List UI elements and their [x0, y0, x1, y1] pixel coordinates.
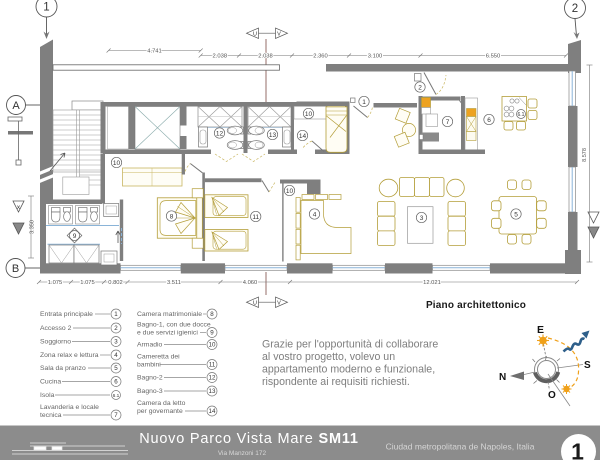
svg-text:3.350: 3.350	[30, 220, 36, 234]
svg-text:10: 10	[286, 188, 294, 195]
svg-text:per governante: per governante	[137, 408, 183, 415]
svg-text:6.1: 6.1	[518, 112, 525, 118]
svg-text:Entrata principale: Entrata principale	[40, 311, 93, 318]
svg-text:Accesso 2: Accesso 2	[40, 325, 72, 332]
svg-text:2.360: 2.360	[313, 54, 328, 60]
svg-text:Via Manzoni 172: Via Manzoni 172	[218, 450, 267, 457]
svg-text:4: 4	[313, 212, 317, 219]
svg-text:3: 3	[114, 339, 118, 346]
svg-text:11: 11	[252, 214, 259, 221]
svg-text:Zona relax e lettura: Zona relax e lettura	[40, 352, 99, 359]
svg-text:tecnica: tecnica	[40, 412, 62, 419]
svg-text:N: N	[499, 372, 506, 383]
svg-text:V: V	[277, 300, 281, 306]
svg-text:Ciudad metropolitana de Napole: Ciudad metropolitana de Napoles, Italia	[386, 442, 535, 452]
svg-text:2.038: 2.038	[258, 54, 273, 60]
svg-text:12: 12	[216, 131, 224, 138]
svg-text:8.578: 8.578	[582, 148, 588, 162]
svg-text:Camera da letto: Camera da letto	[137, 400, 186, 407]
svg-text:14: 14	[299, 133, 307, 140]
svg-text:13: 13	[269, 132, 277, 139]
svg-text:1: 1	[571, 439, 584, 460]
svg-text:Cameretta dei: Cameretta dei	[137, 354, 180, 361]
svg-text:8: 8	[210, 311, 214, 318]
svg-text:2: 2	[572, 3, 578, 15]
svg-text:7: 7	[446, 119, 450, 126]
svg-text:2: 2	[114, 325, 118, 332]
svg-text:7: 7	[114, 412, 118, 419]
svg-text:5: 5	[514, 212, 518, 219]
svg-text:12: 12	[209, 375, 216, 382]
svg-text:4.060: 4.060	[243, 280, 258, 286]
svg-text:Camera matrimoniale: Camera matrimoniale	[137, 311, 202, 318]
svg-text:10: 10	[209, 342, 216, 349]
svg-text:6: 6	[487, 117, 491, 124]
svg-text:A: A	[12, 100, 20, 112]
svg-text:O: O	[548, 390, 556, 401]
svg-text:5: 5	[114, 365, 118, 372]
svg-text:3.511: 3.511	[167, 280, 181, 286]
svg-text:2.038: 2.038	[213, 54, 228, 60]
svg-text:10: 10	[113, 160, 121, 167]
svg-text:1: 1	[114, 311, 118, 318]
svg-text:V: V	[277, 31, 281, 37]
svg-text:0.802: 0.802	[108, 280, 123, 286]
svg-text:appartamento moderno e funzion: appartamento moderno e funzionale,	[262, 364, 435, 376]
svg-text:S: S	[584, 360, 591, 371]
svg-text:3: 3	[420, 215, 424, 222]
svg-text:4: 4	[114, 352, 118, 359]
svg-text:B: B	[12, 263, 19, 275]
svg-text:1.075: 1.075	[80, 280, 95, 286]
svg-text:Grazie per l'opportunità di co: Grazie per l'opportunità di collaborare	[262, 339, 438, 351]
svg-text:1: 1	[362, 99, 366, 106]
svg-text:10: 10	[305, 111, 313, 118]
svg-text:2: 2	[418, 85, 422, 92]
svg-text:Bagno-3: Bagno-3	[137, 388, 163, 395]
svg-text:9: 9	[210, 330, 214, 337]
svg-text:1: 1	[43, 2, 49, 14]
svg-text:Armadio: Armadio	[137, 342, 163, 349]
svg-text:U: U	[253, 31, 257, 37]
svg-text:4.741: 4.741	[147, 49, 162, 55]
svg-text:11: 11	[209, 362, 216, 369]
svg-text:13: 13	[209, 388, 216, 395]
svg-text:U: U	[253, 300, 257, 306]
svg-text:Nuovo Parco Vista Mare SM11: Nuovo Parco Vista Mare SM11	[139, 431, 359, 447]
svg-text:Soggiorno: Soggiorno	[40, 339, 71, 346]
svg-text:1.075: 1.075	[48, 280, 63, 286]
svg-text:Piano architettonico: Piano architettonico	[426, 300, 526, 311]
svg-text:bambini: bambini	[137, 362, 161, 369]
svg-text:8: 8	[170, 214, 174, 221]
svg-text:Cucina: Cucina	[40, 379, 61, 386]
svg-text:Lavanderia e locale: Lavanderia e locale	[40, 404, 99, 411]
svg-text:12.021: 12.021	[423, 280, 441, 286]
svg-text:6.550: 6.550	[486, 54, 501, 60]
svg-text:e due servizi igienici: e due servizi igienici	[137, 330, 198, 337]
svg-text:al vostro progetto, volevo un: al vostro progetto, volevo un	[262, 351, 395, 363]
svg-text:9: 9	[73, 233, 77, 240]
svg-text:6: 6	[114, 379, 118, 386]
svg-text:Bagno-2: Bagno-2	[137, 375, 163, 382]
svg-text:rispondente ai requisiti richi: rispondente ai requisiti richiesti.	[262, 376, 410, 388]
svg-text:6.1: 6.1	[113, 393, 120, 399]
svg-text:Sala da pranzo: Sala da pranzo	[40, 365, 86, 372]
svg-text:Isola: Isola	[40, 392, 55, 399]
svg-text:14: 14	[209, 408, 216, 415]
svg-text:3.100: 3.100	[368, 54, 383, 60]
svg-text:E: E	[537, 324, 544, 336]
svg-text:Bagno-1, con due docce: Bagno-1, con due docce	[137, 322, 211, 329]
